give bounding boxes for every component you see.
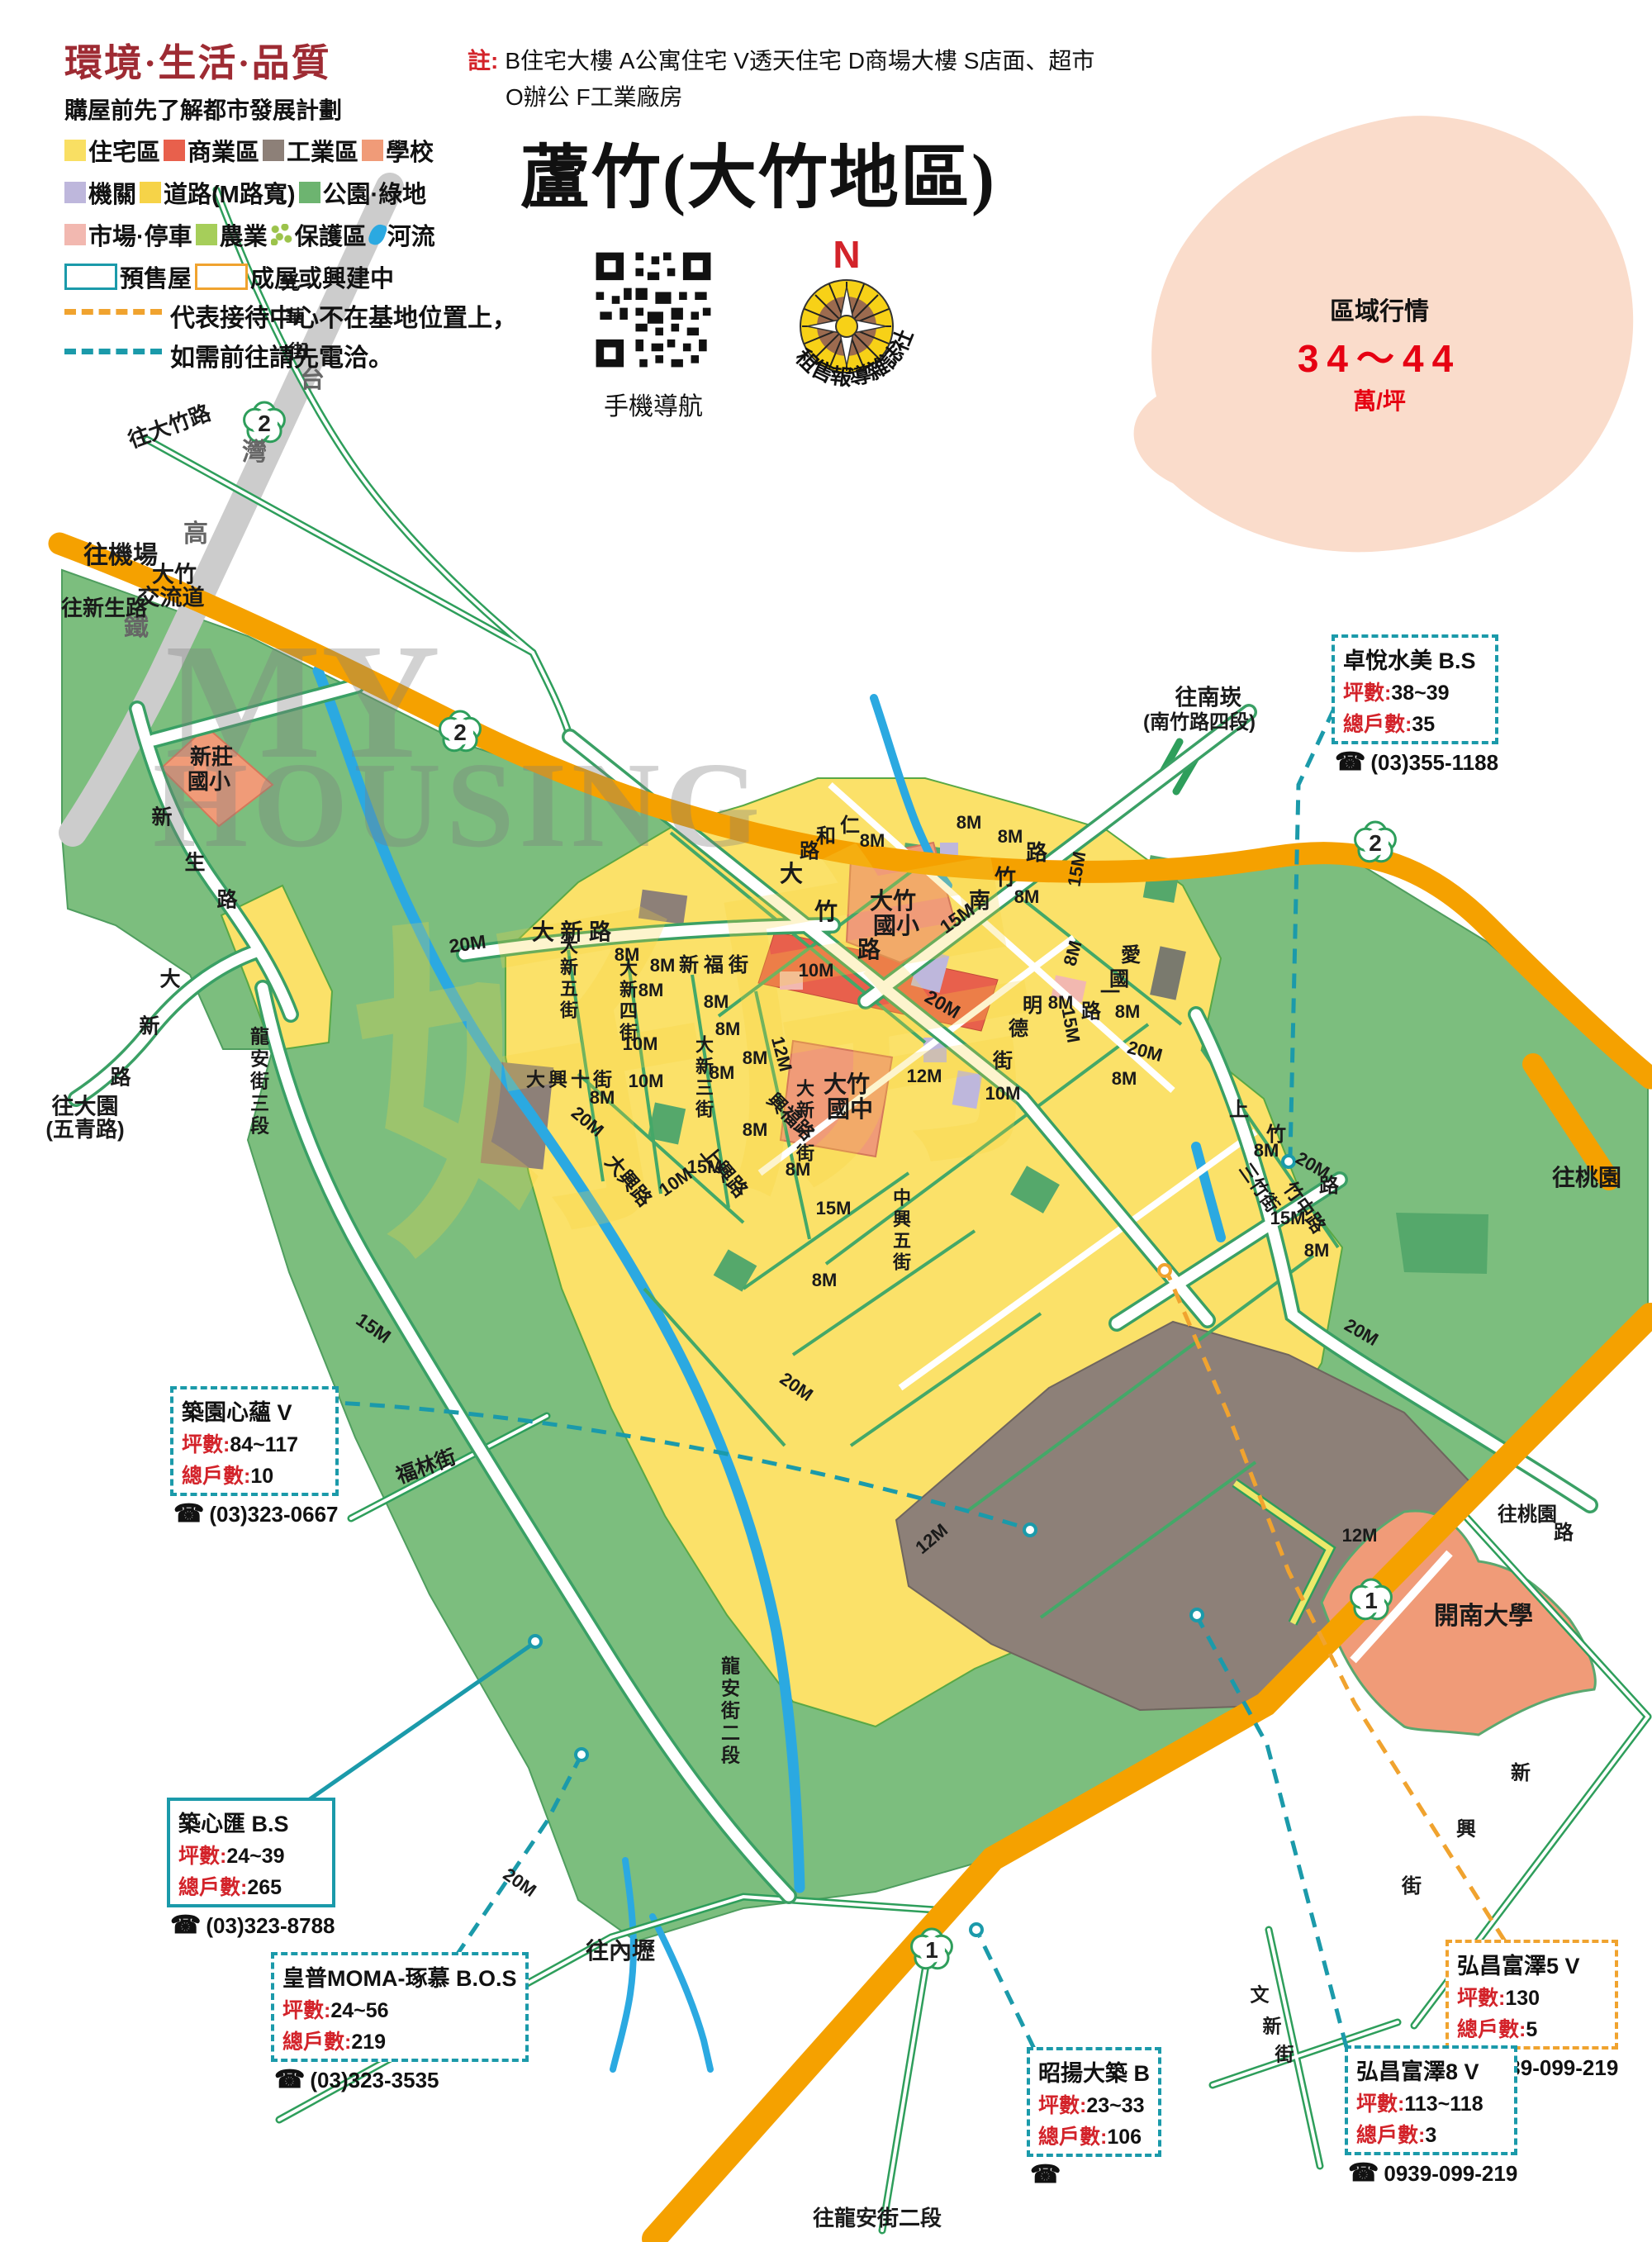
legend-swatch-icon: [367, 222, 387, 247]
legend-note: 代表接待中心不在基地位置上，: [64, 297, 477, 334]
legend-item: 市場·停車: [64, 217, 192, 252]
compass-rose: N 租售報導雜誌社: [768, 231, 925, 417]
legend-item: 商業區: [164, 133, 259, 168]
project-name: 弘昌富澤5 V: [1457, 1948, 1607, 1980]
region-price-label: 區域行情: [1272, 291, 1487, 327]
dashed-line-icon: [64, 349, 162, 354]
highway-shield-icon: 2: [1355, 822, 1396, 862]
legend-label: 農業: [220, 217, 268, 252]
project-phone: 0939-099-219: [1384, 2161, 1517, 2186]
project-phone: (03)323-0667: [209, 1502, 338, 1527]
callout-project: 卓悅水美 B.S 坪數:38~39 總戶數:35 ☎(03)355-1188: [1332, 634, 1498, 777]
note-line1: B住宅大樓 A公寓住宅 V透天住宅 D商場大樓 S店面、超市: [505, 48, 1094, 74]
legend-label: 道路(M路寬): [164, 175, 295, 210]
legend-swatch-icon: [362, 140, 383, 161]
legend-swatch-icon: [140, 182, 161, 203]
legend-swatch-icon: [164, 140, 185, 161]
legend-note-text: 代表接待中心不在基地位置上，: [170, 297, 517, 334]
svg-text:1: 1: [1365, 1588, 1378, 1613]
project-name: 昭揚大築 B: [1038, 2055, 1150, 2088]
legend-item: 住宅區: [64, 133, 160, 168]
poster-page: 22211 MY HOUSING 好房 環境·生活·品質 購屋前先了解都市發展計…: [0, 0, 1652, 2242]
legend-label: 機關: [88, 175, 136, 210]
page-slogan: 環境·生活·品質: [64, 33, 477, 88]
phone-icon: ☎: [173, 1500, 204, 1527]
legend-item: 河流: [370, 217, 435, 252]
legend-item: 公園·綠地: [299, 175, 427, 210]
legend-swatch-icon: [196, 224, 217, 245]
svg-text:2: 2: [1369, 830, 1382, 856]
type-code-note: 註:B住宅大樓 A公寓住宅 V透天住宅 D商場大樓 S店面、超市 O辦公 F工業…: [468, 43, 1094, 112]
legend-label: 預售屋: [120, 259, 192, 294]
legend-item: 保護區: [271, 217, 367, 252]
legend-swatch-icon: [64, 140, 86, 161]
dashed-line-icon: [64, 309, 162, 315]
callout-project: 昭揚大築 B 坪數:23~33 總戶數:106 ☎: [1027, 2047, 1161, 2189]
callout-project: 弘昌富澤8 V 坪數:113~118 總戶數:3 ☎0939-099-219: [1345, 2045, 1517, 2187]
legend-label: 商業區: [188, 133, 259, 168]
legend-item: 農業: [196, 217, 268, 252]
legend-label: 公園·綠地: [323, 175, 427, 210]
phone-icon: ☎: [274, 2066, 305, 2093]
legend-swatch-icon: [64, 224, 86, 245]
callout-project: 皇普MOMA-琢慕 B.O.S 坪數:24~56 總戶數:219 ☎(03)32…: [271, 1952, 529, 2094]
legend-label: 工業區: [287, 133, 358, 168]
legend-label: 住宅區: [88, 133, 160, 168]
legend-item: 學校: [362, 133, 434, 168]
qr-block: 手機導航: [588, 245, 719, 422]
project-name: 弘昌富澤8 V: [1356, 2054, 1506, 2086]
project-phone: (03)323-8788: [206, 1913, 335, 1938]
project-name: 築園心蘊 V: [182, 1394, 327, 1427]
legend-item: 工業區: [263, 133, 358, 168]
legend-note: 如需前往請先電洽。: [64, 337, 477, 373]
legend-notes: 代表接待中心不在基地位置上，如需前往請先電洽。: [64, 297, 477, 373]
note-prefix: 註:: [468, 48, 498, 74]
legend-item: 預售屋: [64, 259, 192, 294]
legend-label: 保護區: [295, 217, 367, 252]
callout-project: 築園心蘊 V 坪數:84~117 總戶數:10 ☎(03)323-0667: [170, 1386, 339, 1528]
callout-project: 築心匯 B.S 坪數:24~39 總戶數:265 ☎(03)323-8788: [167, 1798, 335, 1940]
legend-swatch-icon: [299, 182, 320, 203]
phone-icon: ☎: [1335, 748, 1365, 776]
region-price: 區域行情 34～44 萬/坪: [1272, 291, 1487, 416]
page-title: 蘆竹(大竹地區): [520, 122, 996, 222]
phone-icon: ☎: [170, 1912, 201, 1939]
svg-text:2: 2: [258, 411, 271, 436]
svg-text:1: 1: [925, 1937, 938, 1963]
legend: 住宅區商業區工業區學校機關道路(M路寬)公園·綠地市場·停車農業保護區河流預售屋…: [64, 133, 477, 294]
note-line2: O辦公 F工業廠房: [506, 79, 1094, 112]
legend-item: 機關: [64, 175, 136, 210]
phone-icon: ☎: [1348, 2159, 1379, 2187]
industrial-patch: [481, 1061, 554, 1169]
project-name: 築心匯 B.S: [178, 1806, 324, 1838]
legend-swatch-icon: [64, 182, 86, 203]
legend-label: 成屋或興建中: [250, 259, 394, 294]
legend-item: 道路(M路寬): [140, 175, 295, 210]
qr-label: 手機導航: [588, 386, 719, 422]
compass-north-letter: N: [833, 233, 860, 276]
legend-item: 成屋或興建中: [195, 259, 394, 294]
project-phone: (03)323-3535: [310, 2068, 439, 2092]
legend-swatch-icon: [64, 264, 117, 290]
project-name: 皇普MOMA-琢慕 B.O.S: [282, 1960, 517, 1993]
svg-text:2: 2: [453, 720, 467, 745]
legend-label: 河流: [387, 217, 435, 252]
project-phone: (03)355-1188: [1370, 750, 1498, 775]
project-name: 卓悅水美 B.S: [1343, 643, 1487, 675]
legend-note-text: 如需前往請先電洽。: [170, 337, 393, 373]
legend-label: 學校: [386, 133, 434, 168]
legend-swatch-icon: [271, 224, 292, 245]
phone-icon: ☎: [1030, 2161, 1061, 2188]
region-price-value: 34～44: [1272, 329, 1487, 383]
page-subtitle: 購屋前先了解都市發展計劃: [64, 93, 477, 126]
legend-swatch-icon: [263, 140, 284, 161]
region-price-unit: 萬/坪: [1272, 383, 1487, 416]
legend-label: 市場·停車: [88, 217, 192, 252]
legend-swatch-icon: [195, 264, 248, 290]
header: 環境·生活·品質 購屋前先了解都市發展計劃 住宅區商業區工業區學校機關道路(M路…: [64, 33, 477, 373]
qr-code-icon: [588, 245, 719, 375]
